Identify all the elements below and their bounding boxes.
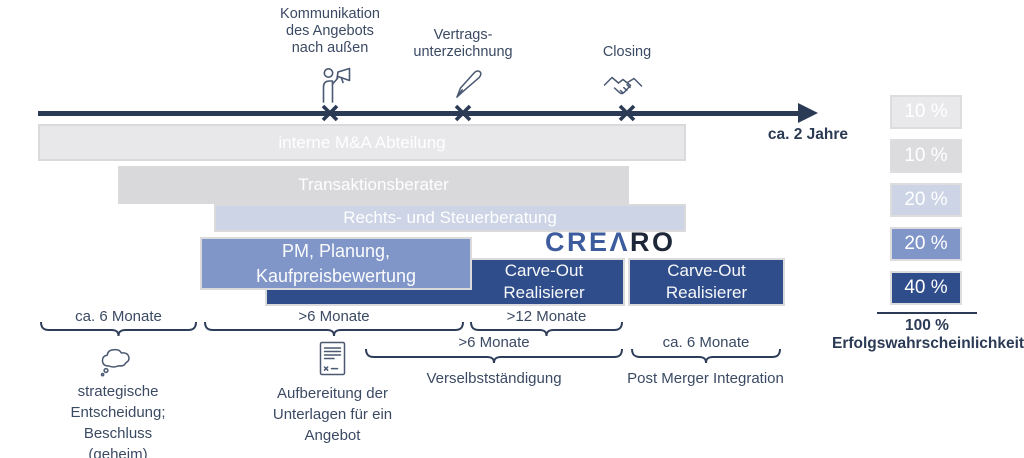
probability-box-3: 20 % (890, 183, 962, 217)
milestone-x-marker (320, 103, 340, 123)
probability-total-value: 100 % (877, 317, 977, 335)
probability-sum-line (877, 312, 977, 314)
logo-text-ro: RO (630, 227, 676, 257)
probability-total-label: Erfolgswahrscheinlichkeit (832, 335, 1024, 353)
bar-carve-out-realisierer-2: Carve-Out Realisierer (628, 258, 785, 306)
bar-pm-planung-kaufpreisbewertung: PM, Planung, Kaufpreisbewertung (200, 237, 472, 290)
probability-box-2: 10 % (890, 139, 962, 173)
phase-bracket (365, 349, 623, 366)
thought-bubble-icon (98, 344, 138, 383)
probability-box-5: 40 % (890, 271, 962, 305)
milestone-label-kommunikation: Kommunikation des Angebots nach außen (280, 6, 380, 57)
note-aufbereitung-unterlagen: Aufbereitung der Unterlagen für ein Ange… (250, 383, 415, 446)
probability-box-1: 10 % (890, 95, 962, 129)
milestone-x-marker (453, 103, 473, 123)
timeline-axis (38, 111, 800, 116)
bar-interne-ma-abteilung: interne M&A Abteilung (38, 124, 686, 161)
milestone-label-closing: Closing (603, 44, 651, 61)
logo-text-cre: CRE (545, 227, 610, 257)
crearo-logo: CREΛRO (545, 229, 725, 255)
handshake-icon (603, 74, 643, 105)
note-post-merger-integration: Post Merger Integration (613, 368, 798, 389)
probability-box-4: 20 % (890, 227, 962, 261)
bar-label: Carve-Out Realisierer (465, 260, 623, 304)
ma-process-diagram: Kommunikation des Angebots nach außen Ve… (0, 0, 1024, 458)
milestone-label-vertragsunterzeichnung: Vertrags- unterzeichnung (413, 27, 512, 61)
timeline-arrowhead (798, 103, 818, 123)
timeline-duration-label: ca. 2 Jahre (740, 126, 848, 144)
phase-bracket (631, 349, 781, 366)
bar-transaktionsberater: Transaktionsberater (118, 166, 629, 204)
document-icon (319, 341, 346, 381)
pen-icon (453, 68, 483, 105)
note-strategische-entscheidung: strategische Entscheidung; Beschluss (ge… (38, 381, 198, 458)
milestone-x-marker (617, 103, 637, 123)
phase-bracket (40, 322, 197, 339)
logo-text-a: Λ (610, 227, 631, 257)
note-verselbststaendigung: Verselbstständigung (404, 368, 584, 389)
